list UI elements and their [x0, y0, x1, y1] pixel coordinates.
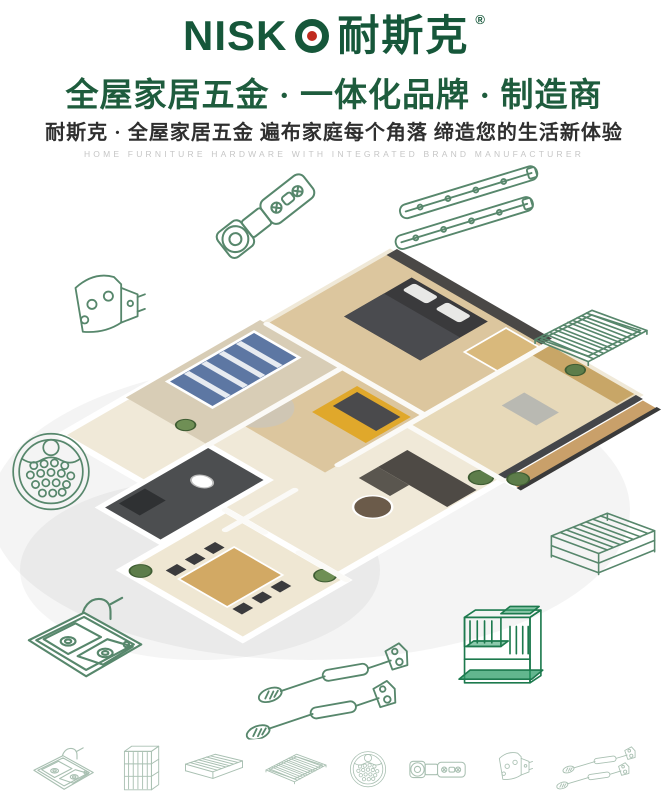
bottom-sink-icon [29, 740, 97, 796]
sink-illustration-icon [20, 583, 148, 689]
english-tagline: HOME FURNITURE HARDWARE WITH INTEGRATED … [0, 149, 668, 159]
logo-latin-text: NISK [183, 15, 287, 57]
bottom-flat-basket-icon [183, 751, 245, 785]
registered-mark: ® [475, 12, 485, 27]
bottom-tall-basket-icon [116, 741, 164, 795]
gas-struts-illustration-icon [235, 640, 421, 740]
subheadline: 耐斯克 · 全屋家居五金 遍布家庭每个角落 缔造您的生活新体验 [0, 116, 668, 145]
logo-o-target-icon [295, 19, 329, 53]
brand-logo: NISK 耐斯克 ® [0, 10, 668, 62]
bottom-perforated-tray-icon [348, 748, 388, 788]
logo-red-dot-icon [307, 31, 317, 41]
bottom-gas-struts-icon [555, 745, 639, 791]
corner-bracket-illustration-icon [50, 266, 154, 350]
poster: NISK 耐斯克 ® 全屋家居五金 · 一体化品牌 · 制造商 耐斯克 · 全屋… [0, 0, 668, 800]
pull-out-basket-illustration-icon [546, 508, 660, 578]
wire-shelf-illustration-icon [530, 303, 652, 369]
perforated-tray-illustration-icon [8, 426, 94, 512]
headline: 全屋家居五金 · 一体化品牌 · 制造商 [0, 68, 668, 116]
bottom-product-strip [0, 738, 668, 798]
bottom-hinge-icon [407, 751, 469, 785]
wire-organizer-illustration-icon [450, 590, 550, 692]
bottom-wire-shelf-icon [264, 750, 328, 786]
bottom-bracket-icon [488, 747, 536, 789]
logo-chinese-text: 耐斯克 [337, 15, 469, 57]
